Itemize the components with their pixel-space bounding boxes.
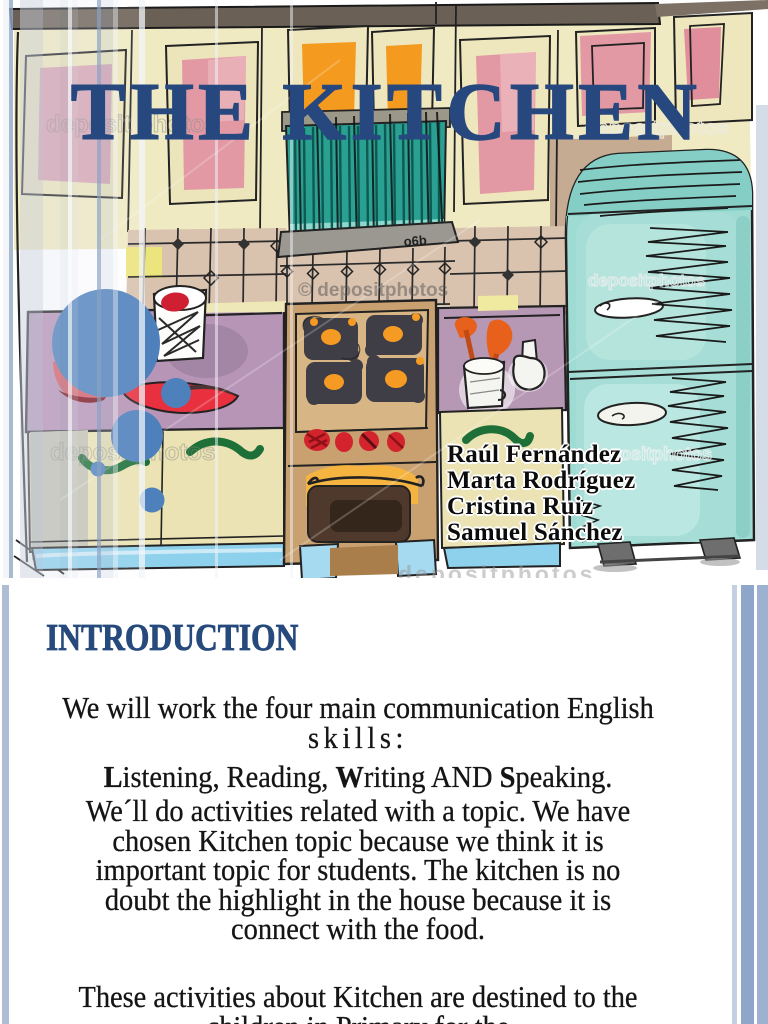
svg-text:depositphotos: depositphotos [588, 271, 705, 290]
svg-text:depositphotos: depositphotos [398, 561, 595, 578]
svg-text:© depositphotos: © depositphotos [298, 280, 448, 301]
svg-text:o6b: o6b [403, 232, 427, 249]
